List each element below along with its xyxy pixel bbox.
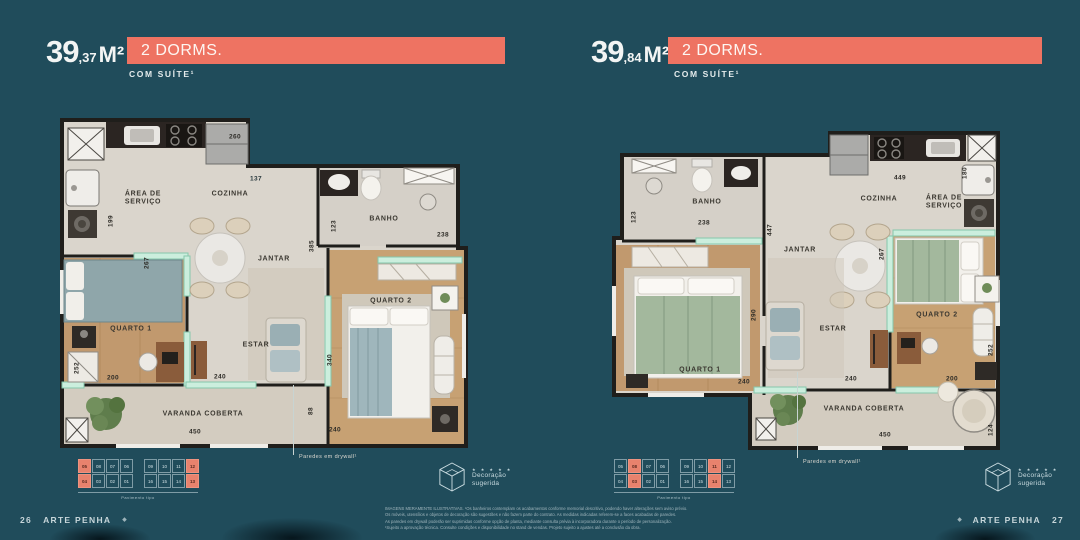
drywall-note-left: Paredes em drywall¹ bbox=[299, 454, 357, 460]
brochure-spread: 39,37M² 2 DORMS. COM SUÍTE¹ 39,84M² 2 DO… bbox=[0, 0, 1080, 540]
dim-123: 123 bbox=[631, 211, 638, 223]
dim-199: 199 bbox=[108, 215, 115, 227]
keyplan-unit-15: 15 bbox=[694, 474, 707, 488]
floorplan-left: ÁREA DE SERVIÇO COZINHA JANTAR BANHO QUA… bbox=[60, 118, 472, 450]
keyplan-unit-05: 05 bbox=[614, 459, 627, 473]
keyplan-unit-03: 03 bbox=[92, 474, 105, 488]
keyplan-unit-06: 06 bbox=[656, 459, 669, 473]
legal-disclaimer: IMAGENS MERAMENTE ILUSTRATIVAS. ¹Os banh… bbox=[385, 506, 699, 532]
keyplan-unit-08: 08 bbox=[92, 459, 105, 473]
dim-137: 137 bbox=[250, 176, 262, 183]
keyplan-unit-16: 16 bbox=[680, 474, 693, 488]
dim-252: 252 bbox=[988, 344, 995, 356]
keyplan-unit-08: 08 bbox=[628, 459, 641, 473]
dim-240a: 240 bbox=[738, 379, 750, 386]
keyplan-unit-11: 11 bbox=[708, 459, 721, 473]
dim-124: 124 bbox=[988, 424, 995, 436]
floorplan-right: BANHO COZINHA ÁREA DE SERVIÇO JANTAR QUA… bbox=[608, 118, 1020, 450]
keyplan-unit-13: 13 bbox=[186, 474, 199, 488]
keyplan-unit-07: 07 bbox=[642, 459, 655, 473]
drywall-pointer-line-left bbox=[293, 385, 294, 455]
decor-suggested-logo-left: ★ ★ ★ ★ ★ Decoração sugerida bbox=[438, 461, 512, 493]
keyplan-unit-03: 03 bbox=[628, 474, 641, 488]
brand-mark-icon: ◆ bbox=[122, 517, 126, 523]
room-label-varanda: VARANDA COBERTA bbox=[824, 405, 905, 413]
page-shadow bbox=[935, 524, 1035, 540]
keyplan-caption-right: Pavimento tipo bbox=[614, 492, 734, 500]
page-shadow bbox=[50, 524, 150, 540]
dim-267: 267 bbox=[144, 257, 151, 269]
room-label-area-servico: ÁREA DE SERVIÇO bbox=[121, 191, 165, 206]
room-label-banho: BANHO bbox=[369, 215, 398, 223]
keyplan-unit-12: 12 bbox=[186, 459, 199, 473]
keyplan-unit-05: 05 bbox=[78, 459, 91, 473]
dim-180: 180 bbox=[962, 167, 969, 179]
dim-449: 449 bbox=[894, 175, 906, 182]
decor-logo-line1: Decoração bbox=[1018, 472, 1058, 480]
keyplan-unit-02: 02 bbox=[642, 474, 655, 488]
keyplan-unit-04: 04 bbox=[614, 474, 627, 488]
keyplan-unit-10: 10 bbox=[694, 459, 707, 473]
keyplan-unit-16: 16 bbox=[144, 474, 157, 488]
keyplan-unit-12: 12 bbox=[722, 459, 735, 473]
area-unit: M² bbox=[644, 42, 670, 68]
dim-450: 450 bbox=[189, 429, 201, 436]
keyplan-unit-15: 15 bbox=[158, 474, 171, 488]
keyplan-caption-left: Pavimento tipo bbox=[78, 492, 198, 500]
dorms-banner-left: 2 DORMS. bbox=[127, 37, 505, 64]
dim-267: 267 bbox=[879, 248, 886, 260]
room-label-jantar: JANTAR bbox=[258, 255, 290, 263]
page-shadow bbox=[222, 518, 362, 540]
brand-mark-icon: ◆ bbox=[957, 517, 961, 523]
keyplan-unit-14: 14 bbox=[708, 474, 721, 488]
dim-385: 385 bbox=[309, 240, 316, 252]
room-label-cozinha: COZINHA bbox=[212, 190, 249, 198]
decor-suggested-logo-right: ★ ★ ★ ★ ★ Decoração sugerida bbox=[984, 461, 1058, 493]
dim-240b: 240 bbox=[329, 427, 341, 434]
area-int: 39 bbox=[46, 34, 78, 70]
dim-88: 88 bbox=[308, 407, 315, 415]
dim-252: 252 bbox=[74, 362, 81, 374]
keyplan-unit-10: 10 bbox=[158, 459, 171, 473]
keyplan-unit-01: 01 bbox=[656, 474, 669, 488]
room-label-quarto1: QUARTO 1 bbox=[110, 325, 152, 333]
dim-123: 123 bbox=[331, 220, 338, 232]
cube-icon bbox=[984, 461, 1012, 493]
room-label-area-servico: ÁREA DE SERVIÇO bbox=[922, 195, 966, 210]
suite-label-left: COM SUÍTE¹ bbox=[129, 69, 195, 79]
page-number-right: 27 bbox=[1052, 515, 1064, 525]
keyplan-unit-11: 11 bbox=[172, 459, 185, 473]
room-label-estar: ESTAR bbox=[243, 341, 270, 349]
disclaimer-line: Os móveis, utensílios e objetos de decor… bbox=[385, 512, 699, 518]
area-value-right: 39,84M² bbox=[591, 34, 669, 70]
keyplan-unit-14: 14 bbox=[172, 474, 185, 488]
keyplan-right: 05080706091011120403020116151413 bbox=[614, 459, 735, 488]
room-label-varanda: VARANDA COBERTA bbox=[163, 410, 244, 418]
keyplan-unit-02: 02 bbox=[106, 474, 119, 488]
dorms-banner-right: 2 DORMS. bbox=[668, 37, 1042, 64]
disclaimer-line: ¹Sujeito a aprovação técnica. Consulte c… bbox=[385, 525, 699, 531]
area-dec: ,37 bbox=[78, 50, 96, 65]
room-label-quarto2: QUARTO 2 bbox=[916, 311, 958, 319]
room-label-cozinha: COZINHA bbox=[861, 195, 898, 203]
cube-icon bbox=[438, 461, 466, 493]
dim-200: 200 bbox=[946, 376, 958, 383]
dim-240a: 240 bbox=[214, 374, 226, 381]
keyplan-unit-07: 07 bbox=[106, 459, 119, 473]
room-label-quarto2: QUARTO 2 bbox=[370, 297, 412, 305]
area-unit: M² bbox=[99, 42, 125, 68]
dim-447: 447 bbox=[767, 224, 774, 236]
room-label-banho: BANHO bbox=[692, 198, 721, 206]
area-int: 39 bbox=[591, 34, 623, 70]
suite-label-right: COM SUÍTE¹ bbox=[674, 69, 740, 79]
floorplan-graphic-right bbox=[608, 118, 1020, 450]
area-value-left: 39,37M² bbox=[46, 34, 124, 70]
keyplan-unit-01: 01 bbox=[120, 474, 133, 488]
dim-240b: 240 bbox=[845, 376, 857, 383]
keyplan-unit-04: 04 bbox=[78, 474, 91, 488]
dim-260: 260 bbox=[229, 134, 241, 141]
dim-290: 290 bbox=[751, 309, 758, 321]
dim-238: 238 bbox=[437, 232, 449, 239]
drywall-pointer-line-right bbox=[797, 372, 798, 458]
page-number-left: 26 bbox=[20, 515, 32, 525]
dim-340: 340 bbox=[327, 354, 334, 366]
room-label-jantar: JANTAR bbox=[784, 246, 816, 254]
dim-238: 238 bbox=[698, 220, 710, 227]
area-dec: ,84 bbox=[623, 50, 641, 65]
keyplan-unit-09: 09 bbox=[680, 459, 693, 473]
dim-450: 450 bbox=[879, 432, 891, 439]
decor-logo-line2: sugerida bbox=[472, 480, 512, 488]
keyplan-unit-09: 09 bbox=[144, 459, 157, 473]
decor-logo-line1: Decoração bbox=[472, 472, 512, 480]
keyplan-unit-13: 13 bbox=[722, 474, 735, 488]
room-label-estar: ESTAR bbox=[820, 325, 847, 333]
keyplan-left: 05080706091011120403020116151413 bbox=[78, 459, 199, 488]
room-label-quarto1: QUARTO 1 bbox=[679, 366, 721, 374]
keyplan-unit-06: 06 bbox=[120, 459, 133, 473]
drywall-note-right: Paredes em drywall¹ bbox=[803, 459, 861, 465]
dim-200: 200 bbox=[107, 375, 119, 382]
floorplan-graphic-left bbox=[60, 118, 472, 450]
decor-logo-line2: sugerida bbox=[1018, 480, 1058, 488]
